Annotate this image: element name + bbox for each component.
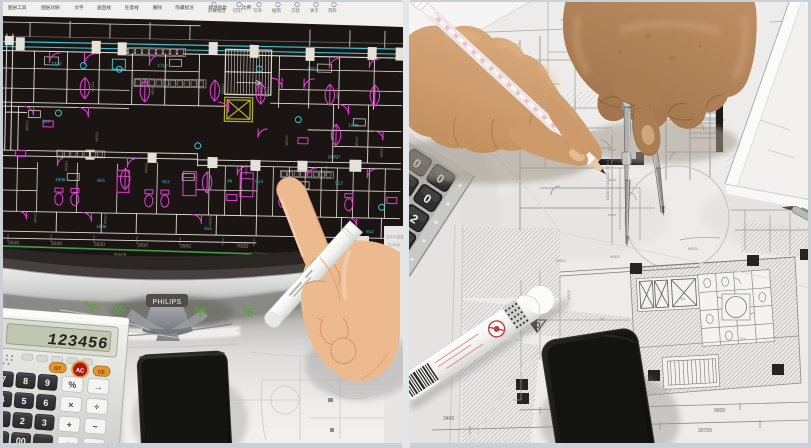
svg-text:1343: 1343 xyxy=(51,61,62,66)
svg-text:M0521: M0521 xyxy=(221,84,225,95)
svg-text:+: + xyxy=(66,420,72,430)
svg-text:1040: 1040 xyxy=(348,123,359,128)
svg-text:M0521: M0521 xyxy=(244,164,248,175)
svg-text:CE: CE xyxy=(98,369,106,376)
svg-text:8100 C734 KD2.72 K#: 8100 C734 KD2.72 K# xyxy=(605,159,610,200)
svg-text:M0521: M0521 xyxy=(355,136,359,147)
svg-text:画直线: 画直线 xyxy=(97,4,111,11)
svg-text:16497: 16497 xyxy=(328,154,341,159)
svg-text:M0521: M0521 xyxy=(336,88,340,99)
svg-text:M0520: M0520 xyxy=(688,247,698,251)
svg-text:1936: 1936 xyxy=(55,177,66,182)
svg-text:M0521: M0521 xyxy=(33,212,37,223)
svg-text:9000: 9000 xyxy=(714,408,725,414)
svg-text:图层对刷: 图层对刷 xyxy=(41,4,60,11)
svg-text:任意线: 任意线 xyxy=(125,4,139,11)
svg-text:M0521: M0521 xyxy=(208,215,212,226)
svg-text:8: 8 xyxy=(23,376,29,386)
svg-text:30700: 30700 xyxy=(698,428,712,434)
svg-text:M0521: M0521 xyxy=(151,84,155,95)
svg-text:文字: 文字 xyxy=(74,4,84,11)
svg-text:M0521: M0521 xyxy=(64,161,68,172)
svg-text:3500: 3500 xyxy=(137,243,148,249)
svg-text:M0521: M0521 xyxy=(324,166,328,177)
svg-text:÷: ÷ xyxy=(94,402,100,412)
svg-text:M0520: M0520 xyxy=(556,259,566,263)
svg-text:比例: 比例 xyxy=(242,4,252,11)
svg-text:M0521: M0521 xyxy=(95,131,99,142)
svg-text:M0521: M0521 xyxy=(91,81,95,92)
svg-text:M0521: M0521 xyxy=(380,147,384,158)
svg-text:屏幕缩放: 屏幕缩放 xyxy=(208,7,226,14)
svg-text:914: 914 xyxy=(680,297,686,301)
svg-text:GT: GT xyxy=(54,366,61,373)
svg-text:×: × xyxy=(68,400,74,410)
svg-text:912: 912 xyxy=(162,179,170,184)
svg-text:M0521: M0521 xyxy=(285,135,289,146)
svg-text:−: − xyxy=(92,422,98,432)
svg-text:3500: 3500 xyxy=(51,241,62,247)
svg-text:%: % xyxy=(68,380,77,391)
svg-text:3: 3 xyxy=(41,418,47,428)
svg-text:M0520: M0520 xyxy=(567,290,571,300)
svg-text:7000: 7000 xyxy=(236,244,249,250)
svg-text:3500: 3500 xyxy=(8,240,19,246)
svg-text:关于: 关于 xyxy=(310,7,319,14)
svg-text:插销: 插销 xyxy=(272,7,281,14)
svg-text:3500: 3500 xyxy=(94,242,105,248)
svg-text:914: 914 xyxy=(255,179,263,184)
svg-text:PHILIPS: PHILIPS xyxy=(153,299,182,306)
svg-text:M0521: M0521 xyxy=(144,162,148,173)
svg-text:打印: 打印 xyxy=(233,7,242,14)
svg-text:资料: 资料 xyxy=(328,7,337,14)
svg-text:2: 2 xyxy=(20,416,26,426)
svg-text:5: 5 xyxy=(21,396,27,406)
svg-text:1712: 1712 xyxy=(157,63,168,68)
svg-text:M0521: M0521 xyxy=(103,213,107,224)
svg-text:口 B 功: 口 B 功 xyxy=(388,242,400,247)
svg-text:M0521: M0521 xyxy=(266,87,270,98)
svg-text:916: 916 xyxy=(97,178,105,183)
svg-text:1012: 1012 xyxy=(307,66,318,71)
svg-text:日G B 拉锁: 日G B 拉锁 xyxy=(386,234,404,239)
svg-text:6: 6 xyxy=(43,398,49,408)
svg-text:3400: 3400 xyxy=(443,416,454,422)
svg-text:9: 9 xyxy=(45,378,51,388)
svg-text:912: 912 xyxy=(366,229,374,234)
svg-text:912: 912 xyxy=(335,180,343,185)
svg-text:M0520: M0520 xyxy=(610,255,620,259)
svg-text:912: 912 xyxy=(600,317,606,321)
svg-text:914: 914 xyxy=(740,337,746,341)
svg-text:汉括: 汉括 xyxy=(291,7,300,14)
svg-text:写块: 写块 xyxy=(253,7,262,14)
svg-text:914: 914 xyxy=(42,119,50,124)
svg-text:→: → xyxy=(93,382,103,393)
svg-text:AC: AC xyxy=(75,368,85,375)
svg-text:3500: 3500 xyxy=(180,243,191,249)
svg-text:删除: 删除 xyxy=(153,4,163,11)
svg-text:M0521: M0521 xyxy=(25,120,29,131)
svg-text:隐藏标注: 隐藏标注 xyxy=(175,4,194,11)
svg-text:46: 46 xyxy=(227,178,233,183)
